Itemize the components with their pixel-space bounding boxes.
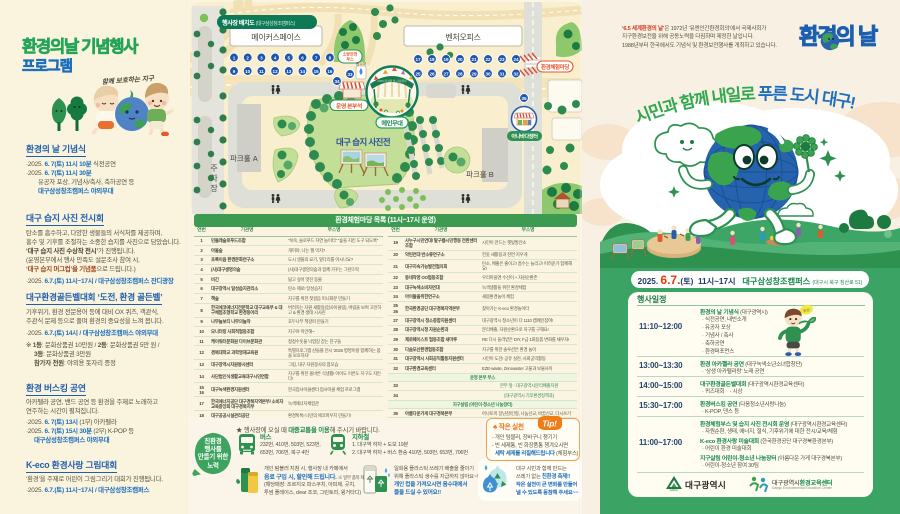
svg-text:26: 26 [429,71,435,76]
svg-text:만들기 위한: 만들기 위한 [198,452,228,461]
svg-text:22: 22 [485,57,491,62]
svg-text:운영 본부석: 운영 본부석 [336,102,362,110]
svg-text:2025 환경의 날 기념행사: 2025 환경의 날 기념행사 [377,79,407,83]
svg-text:파크홀 A: 파크홀 A [230,153,258,163]
svg-text:노력: 노력 [207,460,219,469]
svg-text:행사를: 행사를 [204,444,221,453]
svg-text:14: 14 [300,69,306,74]
svg-text:29: 29 [471,71,477,76]
svg-text:Tip!: Tip! [542,419,557,429]
svg-text:5: 5 [288,55,291,60]
svg-text:19: 19 [443,57,449,62]
svg-text:3: 3 [260,55,263,60]
svg-text:28: 28 [457,71,463,76]
svg-text:32: 32 [513,71,519,76]
svg-text:6: 6 [301,55,304,60]
svg-text:파크홀 B: 파크홀 B [466,169,494,179]
svg-text:8: 8 [329,55,332,60]
svg-text:친환경: 친환경 [204,436,221,445]
svg-text:25: 25 [415,71,421,76]
svg-text:35: 35 [521,96,527,101]
svg-text:음수대: 음수대 [356,61,366,66]
svg-text:18: 18 [429,57,435,62]
svg-text:23: 23 [499,57,505,62]
svg-text:1: 1 [233,55,236,60]
svg-text:2: 2 [246,55,249,60]
svg-text:11: 11 [259,69,264,74]
svg-text:대구 습지 사진전: 대구 습지 사진전 [336,137,391,147]
svg-text:27: 27 [443,71,449,76]
svg-text:30: 30 [485,71,491,76]
svg-text:17: 17 [415,57,421,62]
svg-text:13: 13 [286,69,292,74]
svg-text:환경의 날: 환경의 날 [799,24,878,49]
svg-text:메인무대: 메인무대 [381,120,403,128]
svg-text:행사장 배치도 (대구삼성창조캠퍼스): 행사장 배치도 (대구삼성창조캠퍼스) [222,19,296,27]
svg-text:34: 34 [334,79,340,84]
svg-text:부스: 부스 [346,56,354,62]
svg-text:16: 16 [327,69,333,74]
svg-text:24: 24 [513,57,519,62]
svg-text:12: 12 [273,69,279,74]
svg-text:20: 20 [457,57,463,62]
svg-text:7: 7 [315,55,318,60]
svg-text:벤처오피스: 벤처오피스 [445,32,480,42]
svg-text:메이커스페이스: 메이커스페이스 [251,32,300,42]
svg-text:10: 10 [245,69,251,74]
svg-text:아나바다장터: 아나바다장터 [511,132,538,140]
svg-text:4: 4 [274,55,277,60]
svg-text:31: 31 [499,71,505,76]
svg-text:33: 33 [347,72,353,77]
svg-text:21: 21 [471,57,477,62]
svg-text:환경체험마당: 환경체험마당 [541,63,569,71]
svg-text:DAEGU: DAEGU [670,489,679,491]
svg-text:15: 15 [314,69,320,74]
svg-text:9: 9 [233,69,236,74]
